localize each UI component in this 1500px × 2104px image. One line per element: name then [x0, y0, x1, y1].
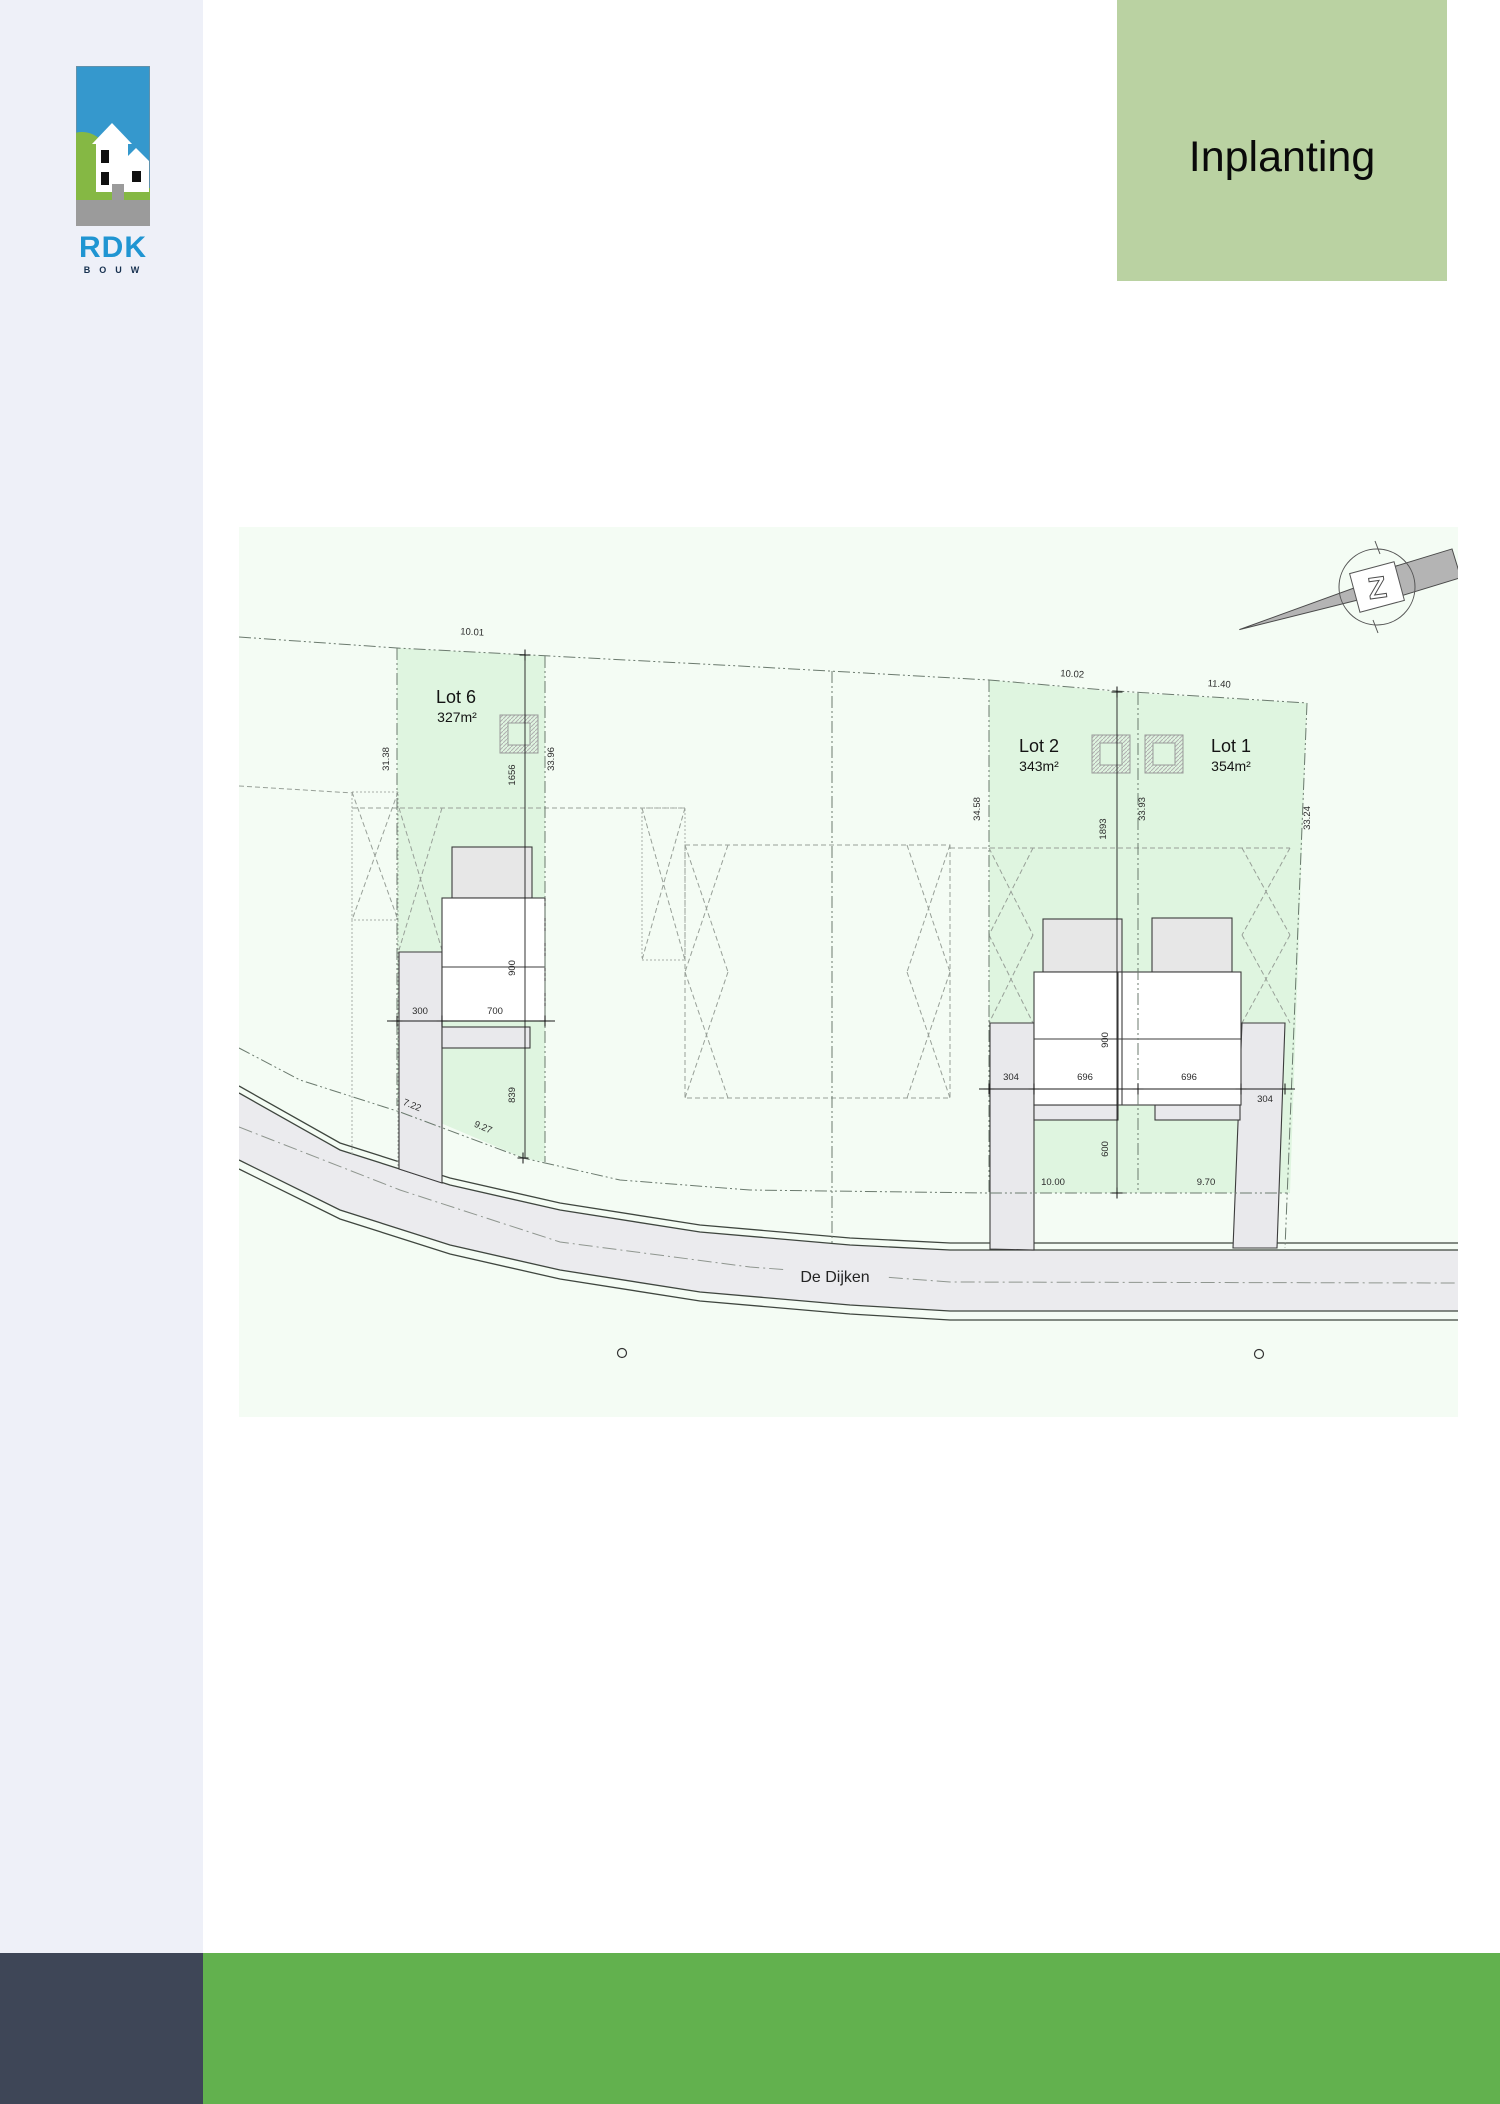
- survey-point: [618, 1349, 627, 1358]
- street: De Dijken: [785, 1265, 885, 1287]
- dim-lot6-house-depth: 900: [507, 960, 518, 976]
- dim-lot6-left: 31.38: [381, 747, 392, 771]
- dim-front-w1: 696: [1077, 1072, 1093, 1083]
- dim-lot1-right: 33.24: [1302, 806, 1313, 830]
- dim-lot2-top: 10.02: [1060, 668, 1084, 680]
- dim-front-right: 304: [1257, 1094, 1273, 1105]
- dim-divider: 33.93: [1137, 797, 1148, 821]
- footer-green-bar: [203, 1953, 1500, 2104]
- dim-garden-depth: 600: [1100, 1141, 1111, 1157]
- company-logo: RDK BOUW: [76, 66, 150, 275]
- lot6-garage-roof: [452, 847, 532, 898]
- lot2-garage-roof: [1043, 919, 1122, 972]
- dim-lot1-front: 9.70: [1197, 1177, 1216, 1188]
- sheet-title-box: Inplanting: [1117, 0, 1447, 281]
- lot6-driveway: [399, 952, 442, 1183]
- page: RDK BOUW Inplanting: [0, 0, 1500, 2104]
- lot1-garage-roof: [1152, 918, 1232, 972]
- brand-name: RDK: [76, 233, 150, 263]
- lot2-driveway: [990, 1023, 1034, 1250]
- dim-lot2-left: 34.58: [972, 797, 983, 821]
- dim-lot6-right: 33.96: [546, 747, 557, 771]
- dim-house-depth: 900: [1100, 1032, 1111, 1048]
- sheet-title: Inplanting: [1189, 133, 1376, 182]
- lot2-area: 343m²: [1019, 758, 1059, 774]
- survey-point: [1255, 1350, 1264, 1359]
- lot6-name: Lot 6: [436, 687, 476, 707]
- dim-lot6-front-strip: 300: [412, 1006, 428, 1017]
- lot6-house: [442, 898, 545, 1021]
- lot6-area: 327m²: [437, 709, 477, 725]
- lot1-area: 354m²: [1211, 758, 1251, 774]
- lot2-terrace: [1034, 1105, 1118, 1120]
- lot1-name: Lot 1: [1211, 736, 1251, 756]
- dim-lot6-rear: 839: [507, 1087, 518, 1103]
- left-sidebar: [0, 0, 203, 1953]
- dim-lot6-top: 10.01: [460, 626, 484, 638]
- dim-lot6-depth: 1656: [507, 764, 518, 785]
- dim-lot6-front-width: 700: [487, 1006, 503, 1017]
- dim-front-w2: 696: [1181, 1072, 1197, 1083]
- logo-house-icon: [76, 66, 150, 226]
- dim-lot1-top: 11.40: [1207, 678, 1231, 690]
- dim-lot2-front: 10.00: [1041, 1177, 1065, 1188]
- brand-subtitle: BOUW: [76, 265, 150, 275]
- dim-center-depth: 1893: [1098, 818, 1109, 839]
- street-label: De Dijken: [800, 1269, 869, 1286]
- dim-front-left: 304: [1003, 1072, 1019, 1083]
- site-plan: Lot 6 327m² Lot 2 343m² Lot 1 354m² 10.0…: [239, 527, 1458, 1417]
- footer-dark-bar: [0, 1953, 203, 2104]
- lot6-terrace: [442, 1027, 530, 1048]
- lot1-terrace: [1155, 1105, 1240, 1120]
- lot2-name: Lot 2: [1019, 736, 1059, 756]
